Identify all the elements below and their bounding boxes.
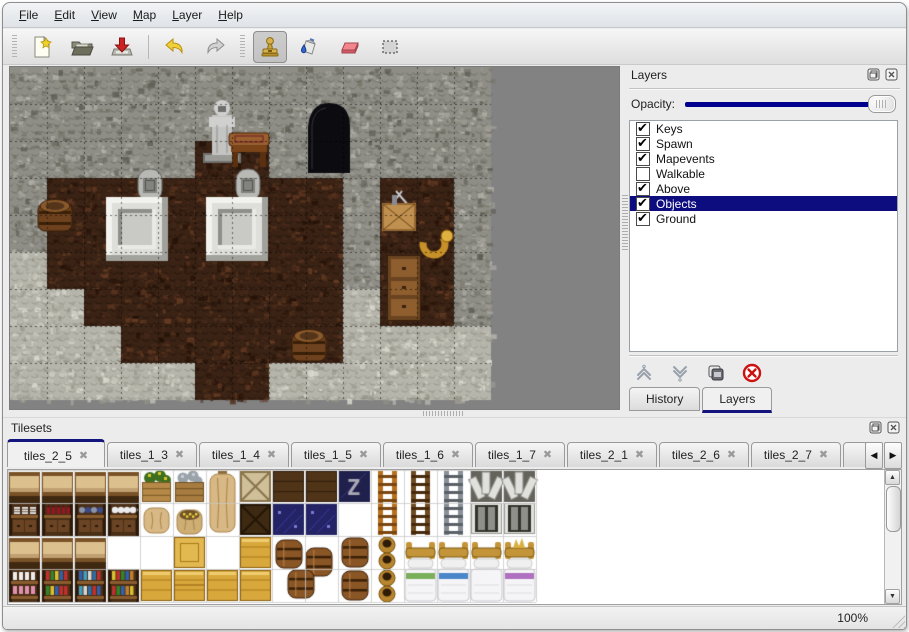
dock-tabs: History Layers	[629, 387, 774, 411]
scroll-down-icon[interactable]: ▼	[885, 589, 900, 604]
tileset-tab-tiles_1_5[interactable]: tiles_1_5✖	[291, 442, 381, 467]
tab-scroll-arrows: ◀ ▶	[864, 442, 902, 469]
eraser-icon	[338, 35, 362, 59]
layer-row-ground[interactable]: Ground	[630, 211, 897, 226]
menu-file[interactable]: File	[11, 5, 46, 25]
layers-panel: Layers Opacity: Keys Spawn Mapevents	[629, 66, 900, 411]
toolbar-grip-2[interactable]	[240, 35, 245, 59]
close-tab-icon[interactable]: ✖	[451, 444, 460, 466]
close-tab-icon[interactable]: ✖	[727, 444, 736, 466]
opacity-slider-track[interactable]	[685, 102, 870, 107]
menu-bar: File Edit View Map Layer Help	[3, 3, 906, 28]
tilesets-header: Tilesets	[3, 417, 906, 438]
tileset-scrollbar[interactable]: ▲ ▼	[884, 470, 901, 604]
save-button[interactable]	[105, 31, 139, 63]
layer-row-spawn[interactable]: Spawn	[630, 136, 897, 151]
tileset-tab-tiles_2_1[interactable]: tiles_2_1✖	[567, 442, 657, 467]
menu-edit[interactable]: Edit	[46, 5, 83, 25]
close-panel-icon[interactable]	[886, 420, 900, 434]
close-tab-icon[interactable]: ✖	[635, 444, 644, 466]
move-layer-down-button[interactable]	[667, 360, 693, 386]
tileset-tab-tiles_1_3[interactable]: tiles_1_3✖	[107, 442, 197, 467]
tileset-tab-partial[interactable]: tiles_	[843, 442, 866, 467]
redo-icon	[203, 35, 227, 59]
select-tool-button[interactable]	[373, 31, 407, 63]
tileset-tab-tiles_2_7[interactable]: tiles_2_7✖	[751, 442, 841, 467]
layer-label: Spawn	[656, 137, 693, 151]
close-panel-icon[interactable]	[884, 67, 898, 81]
layer-label: Keys	[656, 122, 683, 136]
duplicate-layer-button[interactable]	[703, 360, 729, 386]
opacity-label: Opacity:	[631, 97, 675, 111]
opacity-slider-handle[interactable]	[868, 95, 896, 113]
open-folder-icon	[70, 35, 94, 59]
scroll-tabs-right-icon[interactable]: ▶	[884, 442, 902, 469]
stamp-tool-button[interactable]	[253, 31, 287, 63]
move-layer-up-button[interactable]	[631, 360, 657, 386]
tileset-view: ▲ ▼	[7, 469, 902, 605]
layer-checkbox[interactable]	[636, 212, 650, 226]
menu-view[interactable]: View	[83, 5, 125, 25]
undo-button[interactable]	[158, 31, 192, 63]
layer-checkbox[interactable]	[636, 137, 650, 151]
map-canvas[interactable]	[10, 67, 619, 409]
layer-checkbox[interactable]	[636, 167, 650, 181]
tileset-tab-tiles_1_7[interactable]: tiles_1_7✖	[475, 442, 565, 467]
layer-label: Ground	[656, 212, 696, 226]
menu-map[interactable]: Map	[125, 5, 164, 25]
toolbar-grip[interactable]	[12, 35, 17, 59]
scrollbar-thumb[interactable]	[886, 486, 901, 532]
tileset-tab-tiles_1_6[interactable]: tiles_1_6✖	[383, 442, 473, 467]
tileset-tab-tiles_1_4[interactable]: tiles_1_4✖	[199, 442, 289, 467]
delete-layer-button[interactable]	[739, 360, 765, 386]
layer-list: Keys Spawn Mapevents Walkable Above Obje…	[629, 120, 898, 352]
save-icon	[110, 35, 134, 59]
layer-label: Mapevents	[656, 152, 715, 166]
new-file-icon	[30, 35, 54, 59]
scroll-up-icon[interactable]: ▲	[885, 470, 900, 485]
layer-checkbox[interactable]	[636, 182, 650, 196]
new-file-button[interactable]	[25, 31, 59, 63]
fill-bucket-icon	[298, 35, 322, 59]
map-view	[9, 66, 620, 410]
layer-row-walkable[interactable]: Walkable	[630, 166, 897, 181]
close-tab-icon[interactable]: ✖	[175, 444, 184, 466]
layer-checkbox[interactable]	[636, 197, 650, 211]
toolbar-separator	[148, 35, 149, 59]
layer-row-mapevents[interactable]: Mapevents	[630, 151, 897, 166]
tileset-tab-tiles_2_5[interactable]: tiles_2_5✖	[7, 439, 105, 467]
fill-tool-button[interactable]	[293, 31, 327, 63]
stamp-tool-icon	[258, 35, 282, 59]
vertical-splitter-handle[interactable]	[622, 195, 628, 251]
float-panel-icon[interactable]	[866, 67, 880, 81]
horizontal-splitter-handle[interactable]	[423, 411, 463, 416]
menu-help[interactable]: Help	[210, 5, 251, 25]
toolbar	[3, 29, 906, 65]
undo-icon	[163, 35, 187, 59]
scroll-tabs-left-icon[interactable]: ◀	[865, 442, 883, 469]
redo-button[interactable]	[198, 31, 232, 63]
divider	[629, 355, 898, 356]
tab-history[interactable]: History	[629, 387, 700, 411]
tilesets-title: Tilesets	[11, 421, 52, 435]
tilesets-panel: Tilesets tiles_2_5✖ tiles_1_3✖ tiles_1_4…	[3, 417, 906, 607]
layer-label: Walkable	[656, 167, 705, 181]
eraser-tool-button[interactable]	[333, 31, 367, 63]
close-tab-icon[interactable]: ✖	[267, 444, 276, 466]
layers-panel-title: Layers	[631, 68, 667, 82]
tileset-canvas[interactable]	[8, 470, 882, 604]
layer-checkbox[interactable]	[636, 122, 650, 136]
status-bar: 100%	[3, 606, 906, 629]
layer-label: Objects	[656, 197, 697, 211]
editor-window: File Edit View Map Layer Help	[2, 2, 907, 630]
zoom-level: 100%	[837, 611, 868, 625]
tileset-tab-tiles_2_6[interactable]: tiles_2_6✖	[659, 442, 749, 467]
menu-layer[interactable]: Layer	[164, 5, 210, 25]
tab-layers[interactable]: Layers	[702, 387, 772, 413]
opacity-row: Opacity:	[629, 94, 900, 114]
close-tab-icon[interactable]: ✖	[79, 445, 88, 467]
open-button[interactable]	[65, 31, 99, 63]
float-panel-icon[interactable]	[868, 420, 882, 434]
close-tab-icon[interactable]: ✖	[359, 444, 368, 466]
divider	[629, 88, 900, 89]
layers-panel-header: Layers	[629, 66, 900, 86]
resize-grip[interactable]	[888, 611, 905, 628]
tileset-tabs: tiles_2_5✖ tiles_1_3✖ tiles_1_4✖ tiles_1…	[7, 439, 866, 467]
layer-checkbox[interactable]	[636, 152, 650, 166]
layer-row-keys[interactable]: Keys	[630, 121, 897, 136]
layer-row-objects[interactable]: Objects	[630, 196, 897, 211]
layer-label: Above	[656, 182, 690, 196]
layer-row-above[interactable]: Above	[630, 181, 897, 196]
close-tab-icon[interactable]: ✖	[543, 444, 552, 466]
layer-buttons	[631, 360, 765, 388]
close-tab-icon[interactable]: ✖	[819, 444, 828, 466]
select-rect-icon	[378, 35, 402, 59]
